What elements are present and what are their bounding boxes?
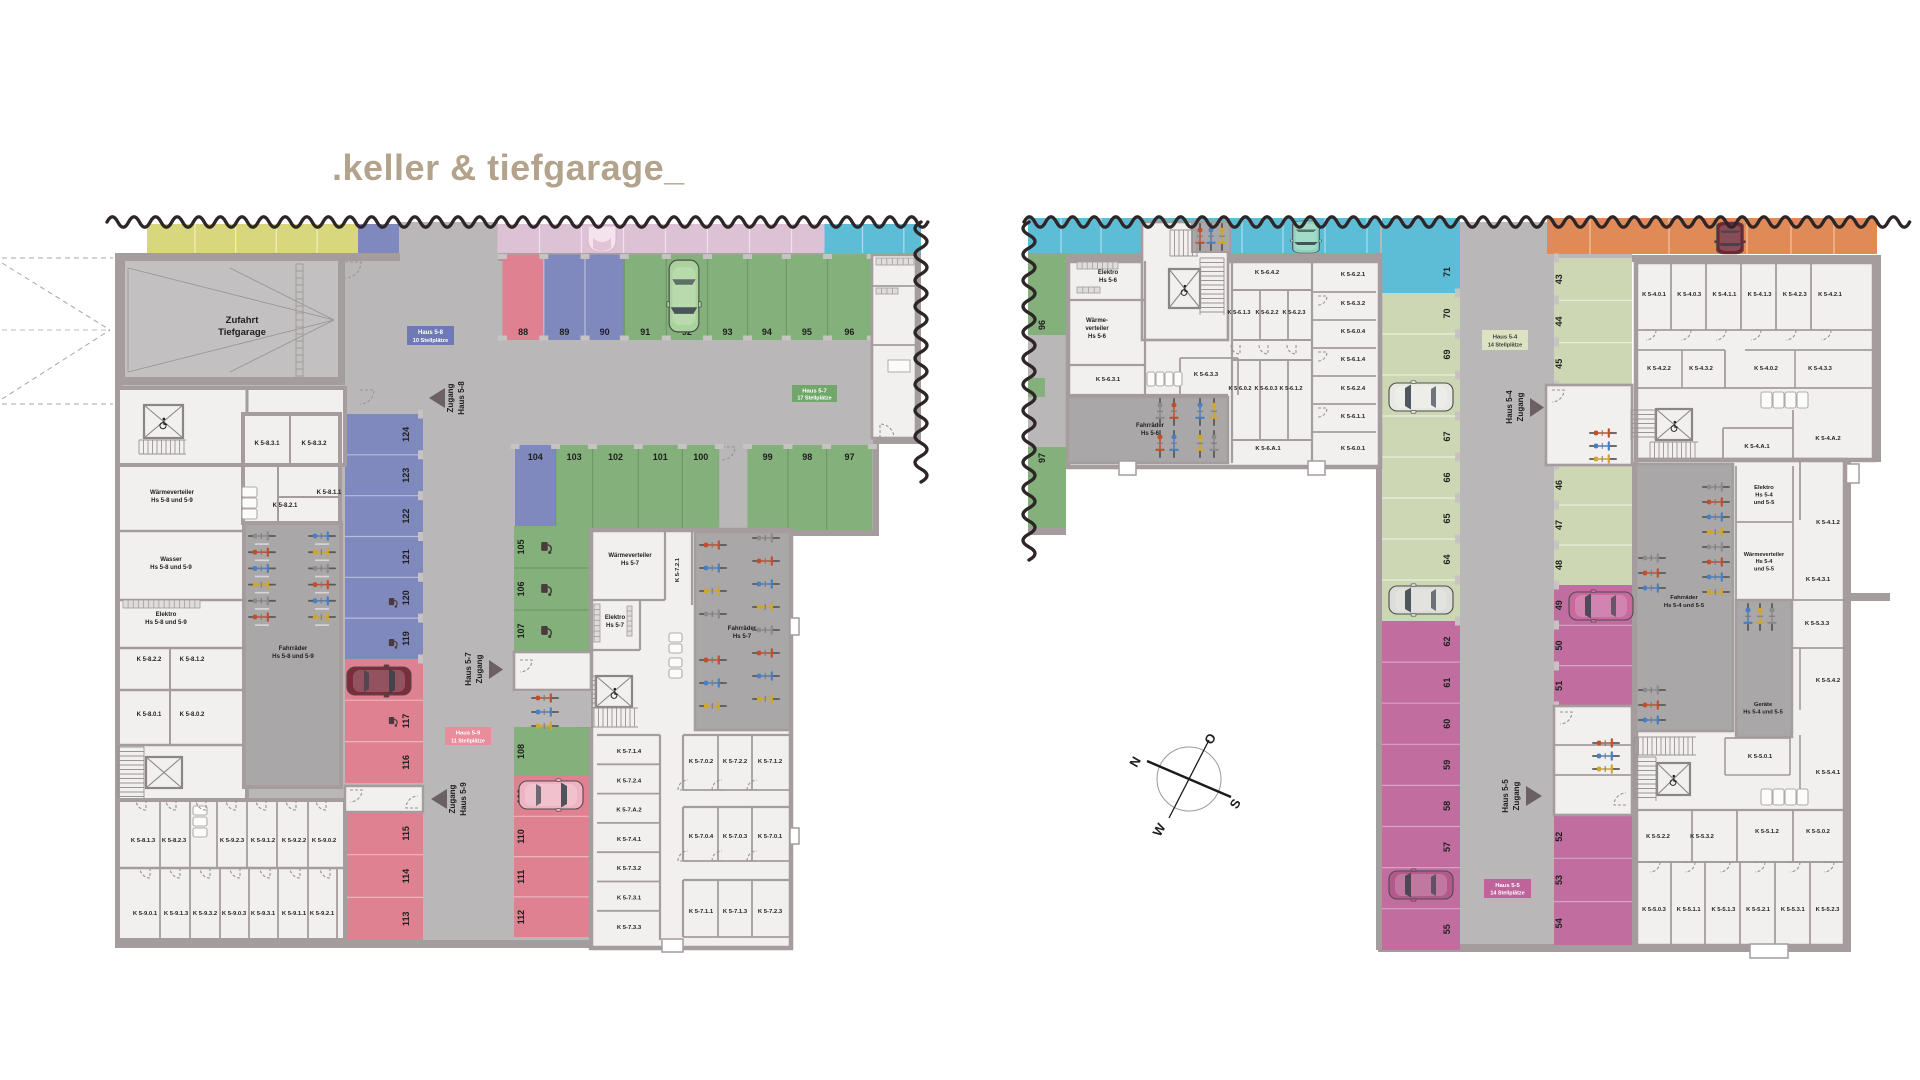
svg-text:K 5-9.1.1: K 5-9.1.1 bbox=[282, 911, 307, 917]
svg-text:Tiefgarage: Tiefgarage bbox=[218, 327, 266, 338]
svg-text:K 5-9.0.3: K 5-9.0.3 bbox=[222, 911, 247, 917]
svg-text:Haus 5-9: Haus 5-9 bbox=[459, 782, 468, 816]
svg-text:K 5-9.1.3: K 5-9.1.3 bbox=[164, 911, 189, 917]
svg-text:Wärme-: Wärme- bbox=[1086, 318, 1108, 324]
svg-text:Haus 5-9: Haus 5-9 bbox=[456, 731, 481, 737]
svg-text:K 5-5.3.3: K 5-5.3.3 bbox=[1805, 621, 1830, 627]
svg-text:111: 111 bbox=[516, 870, 526, 884]
svg-text:Zugang: Zugang bbox=[1516, 392, 1525, 421]
svg-text:57: 57 bbox=[1442, 842, 1452, 852]
svg-text:112: 112 bbox=[516, 910, 526, 925]
svg-text:70: 70 bbox=[1442, 308, 1452, 318]
svg-text:110: 110 bbox=[516, 829, 526, 844]
svg-text:107: 107 bbox=[516, 623, 526, 638]
svg-text:K 5-8.0.2: K 5-8.0.2 bbox=[180, 712, 205, 718]
svg-text:K 5-6.1.1: K 5-6.1.1 bbox=[1341, 414, 1366, 420]
svg-text:62: 62 bbox=[1442, 636, 1452, 646]
svg-text:K 5-7.0.1: K 5-7.0.1 bbox=[758, 834, 783, 840]
svg-text:K 5-8.3.2: K 5-8.3.2 bbox=[301, 440, 327, 447]
svg-text:K 5-4.A.1: K 5-4.A.1 bbox=[1744, 444, 1770, 450]
svg-text:Haus 5-5: Haus 5-5 bbox=[1501, 779, 1510, 813]
svg-text:97: 97 bbox=[844, 452, 854, 462]
svg-text:91: 91 bbox=[640, 327, 650, 337]
svg-text:Fahrräder: Fahrräder bbox=[279, 645, 308, 652]
svg-text:K 5-6.1.2: K 5-6.1.2 bbox=[1279, 386, 1302, 392]
svg-text:Haus 5-4: Haus 5-4 bbox=[1493, 335, 1518, 341]
svg-text:Hs 5-4 und 5-5: Hs 5-4 und 5-5 bbox=[1743, 710, 1783, 716]
svg-text:Hs 5-8 und 5-9: Hs 5-8 und 5-9 bbox=[151, 497, 193, 504]
svg-text:95: 95 bbox=[802, 327, 812, 337]
svg-text:Hs 5-6: Hs 5-6 bbox=[1099, 278, 1118, 284]
svg-text:K 5-8.1.3: K 5-8.1.3 bbox=[131, 838, 156, 844]
svg-text:102: 102 bbox=[608, 452, 623, 462]
svg-text:K 5-6.3.1: K 5-6.3.1 bbox=[1096, 377, 1121, 383]
svg-text:K 5-4.2.1: K 5-4.2.1 bbox=[1818, 292, 1843, 298]
svg-text:99: 99 bbox=[763, 452, 773, 462]
svg-text:98: 98 bbox=[802, 452, 812, 462]
svg-text:93: 93 bbox=[722, 327, 732, 337]
svg-text:K 5-4.3.1: K 5-4.3.1 bbox=[1806, 577, 1831, 583]
svg-text:K 5-7.A.2: K 5-7.A.2 bbox=[616, 808, 642, 814]
svg-text:K 5-9.0.2: K 5-9.0.2 bbox=[312, 838, 337, 844]
svg-text:Haus 5-7: Haus 5-7 bbox=[802, 388, 827, 394]
svg-text:104: 104 bbox=[528, 452, 543, 462]
svg-text:51: 51 bbox=[1554, 681, 1564, 691]
svg-text:11 Stellplätze: 11 Stellplätze bbox=[451, 738, 485, 744]
svg-text:K 5-6.1.3: K 5-6.1.3 bbox=[1227, 310, 1250, 316]
svg-text:Geräte: Geräte bbox=[1754, 702, 1773, 708]
svg-text:K 5-4.0.3: K 5-4.0.3 bbox=[1677, 292, 1702, 298]
svg-text:K 5-7.4.1: K 5-7.4.1 bbox=[617, 837, 642, 843]
svg-text:K 5-5.1.2: K 5-5.1.2 bbox=[1755, 829, 1779, 835]
svg-text:Zugang: Zugang bbox=[448, 784, 457, 813]
svg-text:K 5-7.2.1: K 5-7.2.1 bbox=[675, 557, 681, 582]
svg-text:Hs 5-8 und 5-9: Hs 5-8 und 5-9 bbox=[145, 619, 187, 626]
svg-text:Hs 5-7: Hs 5-7 bbox=[733, 633, 752, 640]
svg-text:108: 108 bbox=[516, 744, 526, 759]
svg-text:117: 117 bbox=[401, 714, 411, 729]
svg-text:K 5-4.3.2: K 5-4.3.2 bbox=[1689, 366, 1713, 372]
svg-text:47: 47 bbox=[1554, 520, 1564, 530]
svg-text:K 5-5.1.3: K 5-5.1.3 bbox=[1711, 907, 1736, 913]
svg-text:114: 114 bbox=[401, 869, 411, 884]
svg-text:K 5-8.2.2: K 5-8.2.2 bbox=[137, 657, 162, 663]
svg-text:K 5-4.3.3: K 5-4.3.3 bbox=[1808, 366, 1833, 372]
svg-text:89: 89 bbox=[559, 327, 569, 337]
svg-text:K 5-4.A.2: K 5-4.A.2 bbox=[1815, 436, 1841, 442]
svg-text:Elektro: Elektro bbox=[1754, 485, 1774, 491]
svg-text:K 5-5.0.2: K 5-5.0.2 bbox=[1806, 829, 1830, 835]
svg-text:43: 43 bbox=[1554, 274, 1564, 284]
svg-text:14 Stellplätze: 14 Stellplätze bbox=[1488, 342, 1522, 348]
svg-text:und 5-5: und 5-5 bbox=[1754, 500, 1775, 506]
svg-text:Elektro: Elektro bbox=[1098, 270, 1119, 276]
svg-text:Wasser: Wasser bbox=[160, 556, 182, 563]
svg-text:103: 103 bbox=[567, 452, 582, 462]
svg-text:Elektro: Elektro bbox=[605, 615, 626, 621]
svg-text:K 5-5.2.3: K 5-5.2.3 bbox=[1816, 907, 1841, 913]
svg-text:14 Stellplätze: 14 Stellplätze bbox=[1490, 891, 1524, 897]
svg-text:106: 106 bbox=[516, 581, 526, 596]
svg-text:K 5-7.3.3: K 5-7.3.3 bbox=[617, 925, 642, 931]
svg-text:45: 45 bbox=[1554, 359, 1564, 369]
svg-text:K 5-9.3.1: K 5-9.3.1 bbox=[251, 911, 276, 917]
svg-text:Hs 5-8 und 5-9: Hs 5-8 und 5-9 bbox=[150, 564, 192, 571]
svg-text:58: 58 bbox=[1442, 801, 1452, 811]
svg-text:K 5-7.0.2: K 5-7.0.2 bbox=[689, 759, 714, 765]
svg-text:K 5-7.1.1: K 5-7.1.1 bbox=[689, 909, 714, 915]
svg-text:60: 60 bbox=[1442, 719, 1452, 729]
svg-text:Fahrräder: Fahrräder bbox=[728, 625, 757, 632]
svg-text:K 5-6.0.1: K 5-6.0.1 bbox=[1341, 446, 1366, 452]
svg-text:K 5-9.0.1: K 5-9.0.1 bbox=[133, 911, 158, 917]
svg-text:46: 46 bbox=[1554, 480, 1564, 490]
svg-text:Haus 5-8: Haus 5-8 bbox=[418, 330, 444, 336]
svg-text:Zugang: Zugang bbox=[446, 383, 455, 412]
svg-text:K 5-5.3.2: K 5-5.3.2 bbox=[1690, 834, 1714, 840]
svg-text:.keller & tiefgarage_: .keller & tiefgarage_ bbox=[332, 147, 685, 188]
svg-text:48: 48 bbox=[1554, 560, 1564, 570]
svg-text:K 5-6.0.4: K 5-6.0.4 bbox=[1341, 329, 1366, 335]
svg-text:116: 116 bbox=[401, 755, 411, 770]
svg-text:Hs 5-4: Hs 5-4 bbox=[1756, 559, 1774, 565]
svg-text:Hs 5-6: Hs 5-6 bbox=[1088, 334, 1107, 340]
svg-text:124: 124 bbox=[401, 427, 411, 442]
svg-text:K 5-7.1.2: K 5-7.1.2 bbox=[758, 759, 783, 765]
svg-text:Wärmeverteiler: Wärmeverteiler bbox=[150, 489, 195, 496]
svg-text:K 5-7.0.3: K 5-7.0.3 bbox=[723, 834, 748, 840]
svg-text:K 5-8.1.2: K 5-8.1.2 bbox=[180, 657, 205, 663]
svg-text:verteiler: verteiler bbox=[1085, 326, 1109, 332]
svg-text:113: 113 bbox=[401, 912, 411, 927]
svg-text:Zufahrt: Zufahrt bbox=[226, 315, 260, 326]
svg-text:49: 49 bbox=[1554, 600, 1564, 610]
svg-text:Haus 5-7: Haus 5-7 bbox=[464, 652, 473, 686]
svg-text:K 5-6.2.3: K 5-6.2.3 bbox=[1282, 310, 1305, 316]
svg-text:97: 97 bbox=[1037, 453, 1047, 463]
svg-text:K 5-4.1.3: K 5-4.1.3 bbox=[1748, 292, 1773, 298]
svg-text:K 5-6.2.4: K 5-6.2.4 bbox=[1341, 386, 1366, 392]
svg-text:44: 44 bbox=[1554, 316, 1564, 326]
svg-text:101: 101 bbox=[653, 452, 668, 462]
svg-text:Fahrräder: Fahrräder bbox=[1670, 595, 1698, 601]
svg-text:69: 69 bbox=[1442, 349, 1452, 359]
svg-text:K 5-8.1.1: K 5-8.1.1 bbox=[317, 490, 342, 496]
svg-text:K 5-4.2.3: K 5-4.2.3 bbox=[1783, 292, 1808, 298]
svg-text:Zugang: Zugang bbox=[475, 654, 484, 683]
svg-text:71: 71 bbox=[1442, 267, 1452, 277]
svg-text:und 5-5: und 5-5 bbox=[1754, 566, 1774, 572]
svg-text:K 5-7.1.3: K 5-7.1.3 bbox=[723, 909, 748, 915]
svg-text:K 5-9.2.2: K 5-9.2.2 bbox=[282, 838, 307, 844]
svg-text:Elektro: Elektro bbox=[156, 611, 177, 618]
svg-text:Hs 5-8 und 5-9: Hs 5-8 und 5-9 bbox=[272, 653, 314, 660]
svg-text:Hs 5-6: Hs 5-6 bbox=[1141, 431, 1160, 437]
svg-text:K 5-9.1.2: K 5-9.1.2 bbox=[251, 838, 276, 844]
svg-text:K 5-9.2.3: K 5-9.2.3 bbox=[220, 838, 245, 844]
svg-text:K 5-7.2.2: K 5-7.2.2 bbox=[723, 759, 748, 765]
svg-text:K 5-7.0.4: K 5-7.0.4 bbox=[689, 834, 714, 840]
svg-text:K 5-6.2.1: K 5-6.2.1 bbox=[1341, 272, 1366, 278]
svg-text:Haus 5-8: Haus 5-8 bbox=[457, 381, 466, 415]
svg-text:K 5-6.2.2: K 5-6.2.2 bbox=[1255, 310, 1278, 316]
svg-text:119: 119 bbox=[401, 631, 411, 646]
svg-text:K 5-7.2.3: K 5-7.2.3 bbox=[758, 909, 783, 915]
svg-text:K 5-7.2.4: K 5-7.2.4 bbox=[617, 778, 642, 784]
svg-text:K 5-8.2.1: K 5-8.2.1 bbox=[273, 503, 298, 509]
svg-text:K 5-5.3.1: K 5-5.3.1 bbox=[1781, 907, 1806, 913]
svg-text:55: 55 bbox=[1442, 924, 1452, 934]
svg-text:K 5-5.4.1: K 5-5.4.1 bbox=[1816, 770, 1841, 776]
svg-text:67: 67 bbox=[1442, 431, 1452, 441]
svg-text:K 5-6.3.3: K 5-6.3.3 bbox=[1194, 372, 1219, 378]
svg-text:K 5-5.2.1: K 5-5.2.1 bbox=[1746, 907, 1771, 913]
svg-text:121: 121 bbox=[401, 549, 411, 564]
svg-text:66: 66 bbox=[1442, 472, 1452, 482]
svg-text:K 5-6.3.2: K 5-6.3.2 bbox=[1341, 301, 1366, 307]
svg-text:K 5-5.4.2: K 5-5.4.2 bbox=[1816, 678, 1841, 684]
svg-text:88: 88 bbox=[518, 327, 528, 337]
svg-text:90: 90 bbox=[600, 327, 610, 337]
svg-text:K 5-4.0.2: K 5-4.0.2 bbox=[1754, 366, 1778, 372]
svg-text:10 Stellplätze: 10 Stellplätze bbox=[413, 338, 448, 344]
svg-text:64: 64 bbox=[1442, 554, 1452, 564]
svg-text:105: 105 bbox=[516, 539, 526, 554]
svg-text:K 5-8.3.1: K 5-8.3.1 bbox=[254, 440, 280, 447]
svg-text:61: 61 bbox=[1442, 678, 1452, 688]
svg-text:K 5-5.1.1: K 5-5.1.1 bbox=[1677, 907, 1702, 913]
svg-text:K 5-5.0.3: K 5-5.0.3 bbox=[1642, 907, 1667, 913]
svg-text:96: 96 bbox=[1037, 320, 1047, 330]
svg-text:59: 59 bbox=[1442, 760, 1452, 770]
svg-text:100: 100 bbox=[693, 452, 708, 462]
svg-text:52: 52 bbox=[1554, 832, 1564, 842]
svg-text:53: 53 bbox=[1554, 875, 1564, 885]
svg-text:Haus 5-5: Haus 5-5 bbox=[1495, 883, 1520, 889]
svg-text:K 5-7.3.1: K 5-7.3.1 bbox=[617, 896, 642, 902]
svg-text:Wärmeverteiler: Wärmeverteiler bbox=[1744, 552, 1785, 558]
svg-text:K 5-6.A.1: K 5-6.A.1 bbox=[1255, 446, 1281, 452]
svg-text:Hs 5-7: Hs 5-7 bbox=[621, 561, 640, 567]
svg-text:K 5-8.2.3: K 5-8.2.3 bbox=[162, 838, 187, 844]
svg-text:K 5-4.2.2: K 5-4.2.2 bbox=[1647, 366, 1671, 372]
svg-text:K 5-8.0.1: K 5-8.0.1 bbox=[137, 712, 162, 718]
svg-text:K 5-4.0.1: K 5-4.0.1 bbox=[1642, 292, 1667, 298]
svg-text:K 5-5.0.1: K 5-5.0.1 bbox=[1748, 754, 1773, 760]
svg-text:K 5-9.3.2: K 5-9.3.2 bbox=[193, 911, 218, 917]
svg-text:65: 65 bbox=[1442, 513, 1452, 523]
svg-text:K 5-4.1.2: K 5-4.1.2 bbox=[1816, 520, 1840, 526]
svg-text:Hs 5-4 und 5-5: Hs 5-4 und 5-5 bbox=[1664, 603, 1705, 609]
svg-text:54: 54 bbox=[1554, 918, 1564, 928]
svg-text:K 5-6.4.2: K 5-6.4.2 bbox=[1255, 270, 1280, 276]
svg-text:120: 120 bbox=[401, 590, 411, 605]
svg-text:K 5-7.1.4: K 5-7.1.4 bbox=[617, 749, 642, 755]
svg-text:123: 123 bbox=[401, 468, 411, 483]
svg-text:122: 122 bbox=[401, 509, 411, 524]
svg-text:K 5-9.2.1: K 5-9.2.1 bbox=[310, 911, 335, 917]
svg-text:K 5-6.0.2: K 5-6.0.2 bbox=[1228, 386, 1251, 392]
svg-text:Zugang: Zugang bbox=[1512, 781, 1521, 810]
svg-text:K 5-6.0.3: K 5-6.0.3 bbox=[1254, 386, 1277, 392]
svg-text:Haus 5-4: Haus 5-4 bbox=[1505, 390, 1514, 424]
svg-text:Wärmeverteiler: Wärmeverteiler bbox=[608, 553, 652, 559]
svg-text:94: 94 bbox=[762, 327, 772, 337]
svg-text:K 5-4.1.1: K 5-4.1.1 bbox=[1712, 292, 1737, 298]
svg-text:Hs 5-7: Hs 5-7 bbox=[606, 623, 625, 629]
svg-text:K 5-6.1.4: K 5-6.1.4 bbox=[1341, 357, 1366, 363]
svg-text:17 Stellplätze: 17 Stellplätze bbox=[797, 396, 831, 402]
svg-text:50: 50 bbox=[1554, 640, 1564, 650]
svg-text:K 5-7.3.2: K 5-7.3.2 bbox=[617, 866, 642, 872]
svg-text:115: 115 bbox=[401, 826, 411, 841]
svg-text:Hs 5-4: Hs 5-4 bbox=[1755, 493, 1773, 499]
svg-text:K 5-5.2.2: K 5-5.2.2 bbox=[1646, 834, 1670, 840]
svg-text:96: 96 bbox=[844, 327, 854, 337]
